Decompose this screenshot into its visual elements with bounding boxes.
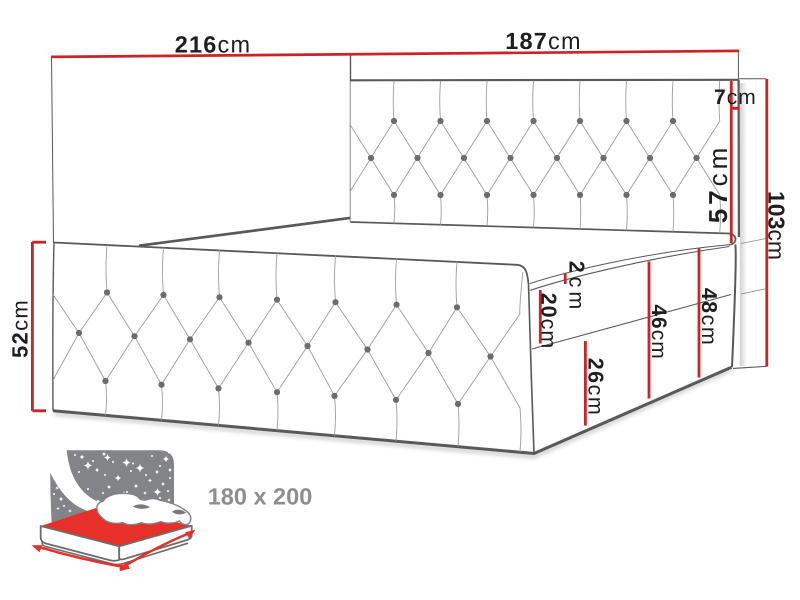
svg-text:180 x 200: 180 x 200: [208, 484, 313, 510]
svg-text:187cm: 187cm: [505, 28, 582, 54]
svg-text:20cm: 20cm: [536, 293, 560, 350]
svg-text:103cm: 103cm: [764, 191, 790, 260]
svg-text:2cm: 2cm: [565, 261, 589, 314]
svg-text:46cm: 46cm: [647, 304, 670, 359]
svg-text:57cm: 57cm: [703, 144, 733, 224]
svg-text:48cm: 48cm: [697, 288, 721, 347]
svg-text:52cm: 52cm: [8, 299, 33, 358]
svg-text:26cm: 26cm: [584, 358, 608, 417]
svg-text:216cm: 216cm: [175, 31, 252, 57]
svg-text:7cm: 7cm: [714, 86, 757, 109]
